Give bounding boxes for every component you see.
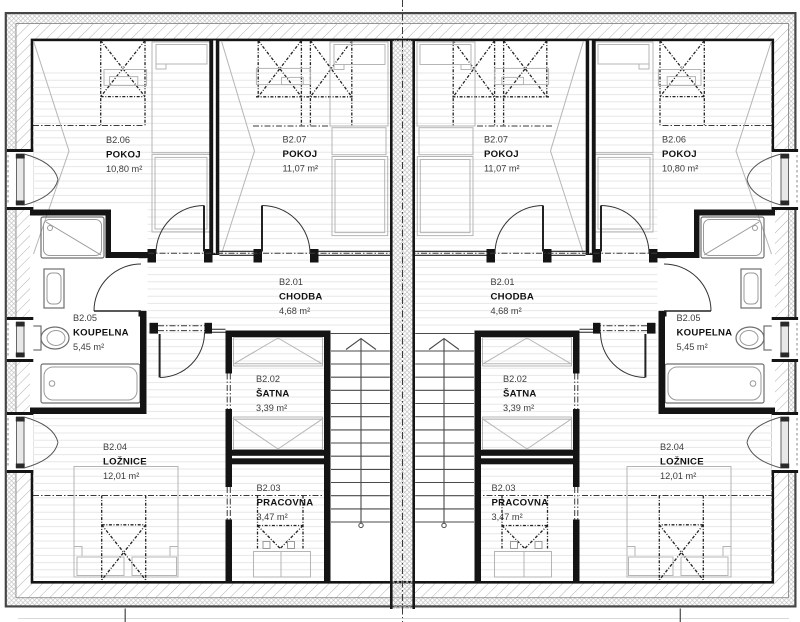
svg-text:POKOJ: POKOJ — [283, 149, 318, 160]
svg-text:KOUPELNA: KOUPELNA — [677, 328, 733, 339]
svg-text:5,45 m²: 5,45 m² — [677, 342, 708, 352]
svg-text:5,45 m²: 5,45 m² — [73, 342, 104, 352]
svg-text:12,01 m²: 12,01 m² — [660, 471, 696, 481]
svg-text:3,47 m²: 3,47 m² — [492, 512, 523, 522]
svg-text:B2.04: B2.04 — [660, 442, 684, 452]
svg-text:KOUPELNA: KOUPELNA — [73, 328, 129, 339]
svg-text:B2.03: B2.03 — [257, 483, 281, 493]
svg-text:10,80 m²: 10,80 m² — [662, 164, 698, 174]
svg-text:PRACOVNA: PRACOVNA — [492, 498, 549, 509]
svg-text:B2.01: B2.01 — [491, 277, 515, 287]
svg-text:3,39 m²: 3,39 m² — [256, 403, 287, 413]
svg-text:POKOJ: POKOJ — [662, 149, 697, 160]
svg-text:11,07 m²: 11,07 m² — [484, 164, 520, 174]
svg-text:4,68 m²: 4,68 m² — [491, 306, 522, 316]
svg-text:ŠATNA: ŠATNA — [503, 388, 537, 400]
svg-text:B2.02: B2.02 — [503, 374, 527, 384]
svg-text:B2.07: B2.07 — [484, 135, 508, 145]
svg-text:B2.04: B2.04 — [103, 442, 127, 452]
svg-text:B2.01: B2.01 — [279, 277, 303, 287]
svg-text:B2.02: B2.02 — [256, 374, 280, 384]
svg-text:CHODBA: CHODBA — [279, 292, 323, 303]
svg-text:B2.03: B2.03 — [492, 483, 516, 493]
svg-text:3,47 m²: 3,47 m² — [257, 512, 288, 522]
svg-text:4,68 m²: 4,68 m² — [279, 306, 310, 316]
svg-text:PRACOVNA: PRACOVNA — [257, 498, 314, 509]
svg-text:10,80 m²: 10,80 m² — [106, 164, 142, 174]
svg-text:12,01 m²: 12,01 m² — [103, 471, 139, 481]
svg-text:B2.05: B2.05 — [677, 313, 701, 323]
svg-text:POKOJ: POKOJ — [484, 149, 519, 160]
svg-text:B2.07: B2.07 — [283, 135, 307, 145]
svg-text:B2.06: B2.06 — [106, 135, 130, 145]
svg-text:LOŽNICE: LOŽNICE — [660, 456, 704, 468]
svg-text:POKOJ: POKOJ — [106, 149, 141, 160]
svg-text:3,39 m²: 3,39 m² — [503, 403, 534, 413]
svg-text:LOŽNICE: LOŽNICE — [103, 456, 147, 468]
svg-text:11,07 m²: 11,07 m² — [283, 164, 319, 174]
svg-text:CHODBA: CHODBA — [491, 292, 535, 303]
svg-text:B2.05: B2.05 — [73, 313, 97, 323]
svg-text:B2.06: B2.06 — [662, 135, 686, 145]
svg-text:ŠATNA: ŠATNA — [256, 388, 290, 400]
